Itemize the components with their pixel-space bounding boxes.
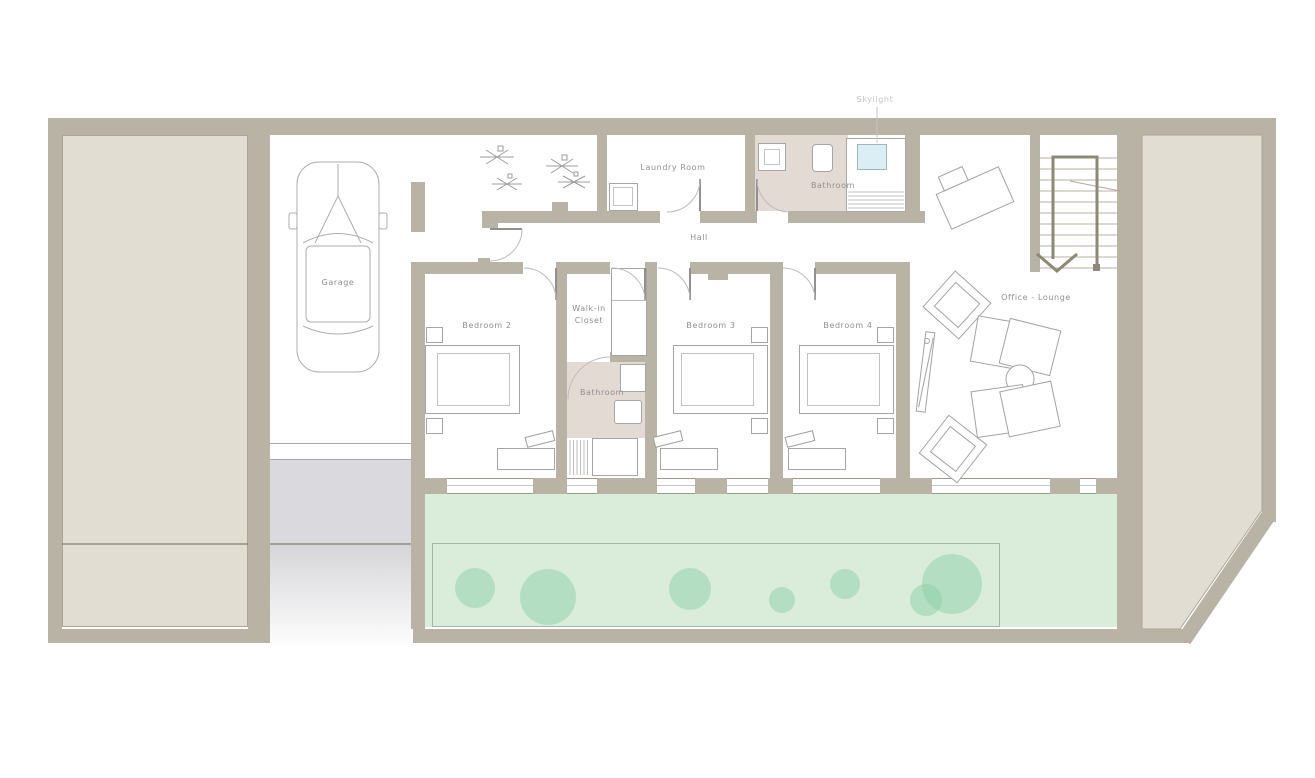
- plant-symbols: [480, 146, 590, 190]
- wall-closet-left: [556, 262, 567, 478]
- sofa: [999, 318, 1061, 375]
- tree: [769, 587, 795, 613]
- window-pier: [1096, 478, 1117, 494]
- room-label-bathroom-top: Bathroom: [811, 180, 855, 192]
- bed-mattress: [681, 353, 754, 406]
- stairs-direction-arrow: [1037, 254, 1077, 271]
- annotation-skylight: Skylight: [857, 94, 894, 106]
- room-label-laundry: Laundry Room: [640, 162, 705, 174]
- left-site-panel: [62, 135, 248, 627]
- wall-interior-right: [1117, 132, 1142, 629]
- window-pier: [880, 478, 932, 494]
- bathtub: [592, 438, 638, 476]
- wall-outer-bottom: [413, 629, 1190, 643]
- stairs-break-line: [1070, 181, 1120, 191]
- wall-diagonal: [1184, 515, 1269, 640]
- stairs-railing: [1053, 157, 1097, 266]
- toilet: [812, 144, 833, 172]
- room-label-hall: Hall: [690, 232, 708, 244]
- desk: [497, 448, 555, 470]
- right-site-panel: [1142, 135, 1262, 629]
- wall-stairs-left: [1030, 135, 1040, 272]
- console-shelf: [916, 332, 935, 413]
- wall-laundry-bottom-left: [597, 211, 660, 223]
- nightstand: [877, 327, 894, 343]
- wall-garage-right: [411, 262, 425, 629]
- window-pier: [695, 478, 727, 494]
- console-knob: [925, 339, 930, 344]
- nightstand: [877, 418, 894, 434]
- wall-bedroom4-top: [815, 262, 896, 274]
- wall-hall: [482, 211, 600, 223]
- wall-hall-notch: [552, 202, 568, 212]
- wall-bedroom3-top: [690, 262, 770, 274]
- wall-outer-right: [1262, 118, 1276, 522]
- bed-mattress: [807, 353, 880, 406]
- wall-hall-endcap: [482, 211, 498, 228]
- wall-bath-jamb: [750, 211, 757, 223]
- window-pier: [1050, 478, 1080, 494]
- wall-bathroom-right: [905, 135, 920, 218]
- car-icon: [289, 162, 387, 372]
- wall-outer-left: [48, 118, 62, 643]
- sofa: [970, 316, 1029, 370]
- wall-garage-right-stub: [411, 182, 425, 232]
- wall-garage-left: [248, 132, 270, 629]
- wall-laundry-left: [597, 132, 607, 223]
- room-label-bedroom4: Bedroom 4: [823, 320, 872, 332]
- wall-bedroom2-top: [411, 262, 523, 274]
- room-label-garage: Garage: [322, 277, 355, 289]
- desk: [788, 448, 846, 470]
- wall-laundry-bottom-right: [700, 211, 750, 223]
- tree: [830, 569, 860, 599]
- room-label-walk-in-closet: Walk-in Closet: [558, 303, 620, 327]
- room-label-bedroom3: Bedroom 3: [686, 320, 735, 332]
- wall-bedroom4-office: [896, 262, 910, 478]
- driveway-ramp-lower: [270, 543, 411, 645]
- nightstand: [751, 327, 768, 343]
- nightstand: [426, 418, 443, 434]
- round-table: [1006, 365, 1034, 393]
- wall-outer-top: [48, 118, 1276, 135]
- closet-shelf-divider: [612, 300, 646, 301]
- garden-inner-bed: [432, 543, 1000, 627]
- sink-basin: [764, 149, 780, 165]
- toilet-middle: [614, 400, 642, 424]
- skylight-glass: [857, 144, 887, 170]
- tree: [520, 569, 576, 625]
- tree: [669, 568, 711, 610]
- window-pier: [597, 478, 657, 494]
- office-desk: [930, 153, 1014, 229]
- wall-closet-top: [556, 262, 610, 274]
- wall-bedroom3-pier: [708, 264, 728, 280]
- sofa: [1000, 381, 1060, 437]
- driveway-ramp-upper: [270, 460, 411, 543]
- room-label-bathroom-middle: Bathroom: [580, 387, 624, 399]
- wall-outer-bottom-left: [48, 629, 270, 643]
- tree: [922, 554, 982, 614]
- lot-line: [48, 543, 413, 545]
- window-band: [411, 478, 1117, 494]
- window-pier: [411, 478, 447, 494]
- window-pier: [768, 478, 793, 494]
- window-glass-line: [411, 485, 1117, 486]
- wall-laundry-bath-divider: [745, 132, 755, 223]
- garage-door-strip: [270, 443, 411, 460]
- tree: [455, 568, 495, 608]
- washer-drum: [613, 187, 633, 206]
- nightstand: [751, 418, 768, 434]
- nightstand: [426, 327, 443, 343]
- room-label-bedroom2: Bedroom 2: [462, 320, 511, 332]
- desk: [660, 448, 718, 470]
- floor-plan: Garage Laundry Room Bathroom Hall Bedroo…: [0, 0, 1315, 778]
- lounge-chair: [919, 415, 986, 482]
- stairs: [1037, 157, 1120, 271]
- wall-bedroom3-4: [770, 262, 783, 478]
- room-label-office-lounge: Office - Lounge: [1001, 292, 1071, 304]
- stairs-rail-end: [1093, 264, 1100, 271]
- bed-mattress: [437, 353, 510, 406]
- sofa: [971, 385, 1029, 438]
- window-pier: [533, 478, 567, 494]
- lounge-chair: [923, 271, 991, 339]
